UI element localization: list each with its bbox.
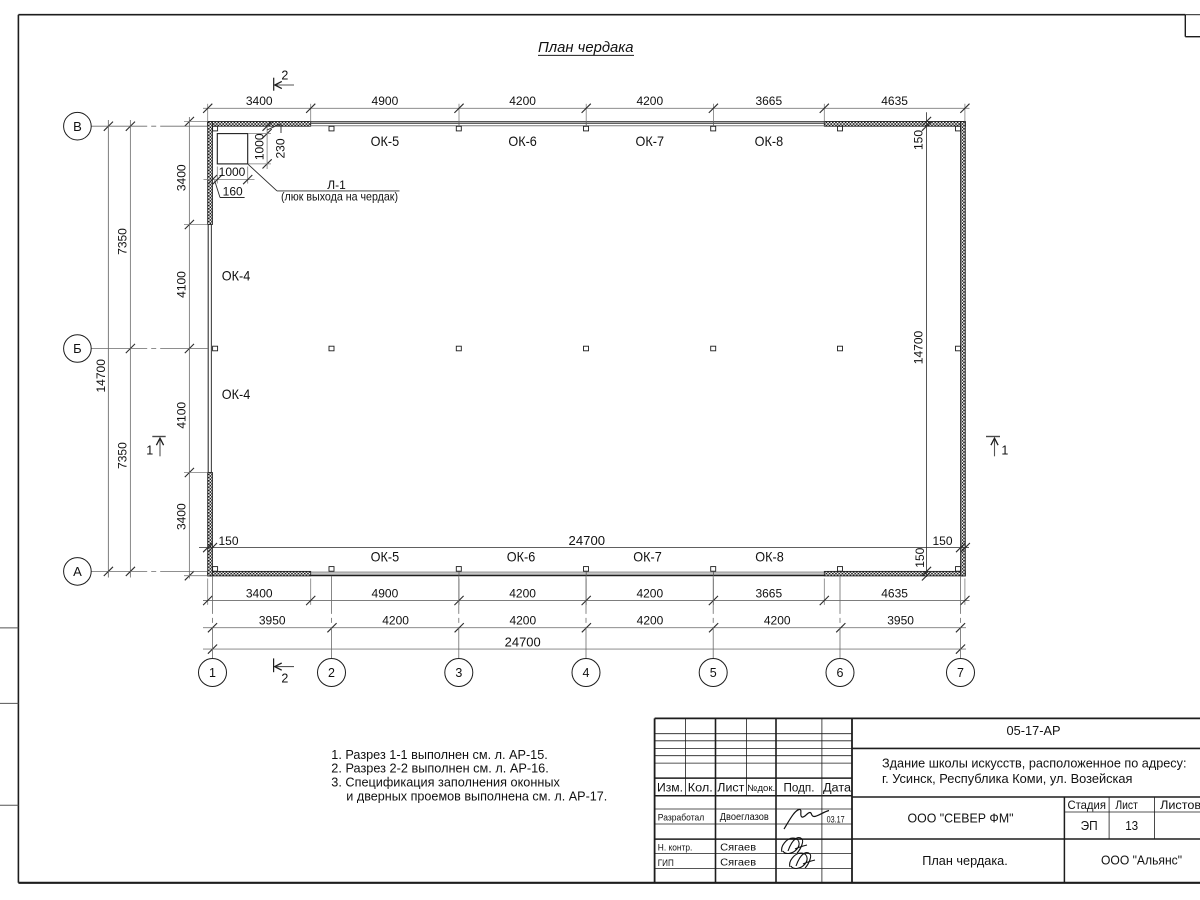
svg-text:4200: 4200	[382, 614, 409, 628]
svg-text:3950: 3950	[259, 614, 286, 628]
svg-text:1: 1	[1001, 443, 1008, 457]
svg-text:ОК-5: ОК-5	[371, 549, 400, 565]
svg-text:В: В	[73, 119, 82, 134]
svg-text:ОК-4: ОК-4	[222, 386, 251, 402]
svg-text:13: 13	[1125, 819, 1138, 833]
svg-text:Сягаев: Сягаев	[720, 842, 756, 853]
svg-text:4200: 4200	[764, 614, 791, 628]
svg-text:и дверных проемов выполнена см: и дверных проемов выполнена см. л. АР-17…	[346, 790, 607, 804]
svg-text:4635: 4635	[881, 94, 908, 108]
svg-text:4200: 4200	[636, 586, 663, 600]
svg-text:150: 150	[911, 130, 925, 150]
svg-text:Изм.: Изм.	[657, 782, 683, 794]
svg-text:г. Усинск, Республика Коми, ул: г. Усинск, Республика Коми, ул. Возейска…	[882, 771, 1133, 786]
svg-text:1. Разрез 1-1 выполнен см. л.: 1. Разрез 1-1 выполнен см. л. АР-15.	[331, 748, 548, 762]
svg-text:Листов: Листов	[1160, 798, 1200, 812]
svg-text:Подп.: Подп.	[784, 782, 815, 794]
svg-text:150: 150	[913, 547, 927, 567]
svg-text:3400: 3400	[246, 586, 273, 600]
svg-text:4900: 4900	[372, 586, 399, 600]
svg-text:ООО "Альянс": ООО "Альянс"	[1101, 852, 1182, 867]
svg-text:7350: 7350	[115, 228, 129, 255]
svg-text:4200: 4200	[637, 614, 664, 628]
svg-text:ОК-7: ОК-7	[636, 133, 665, 149]
svg-text:3400: 3400	[246, 94, 273, 108]
svg-text:ОК-5: ОК-5	[371, 133, 400, 149]
svg-text:4200: 4200	[509, 94, 536, 108]
svg-text:Б: Б	[73, 341, 82, 356]
svg-text:160: 160	[223, 184, 243, 198]
svg-text:5: 5	[710, 666, 717, 680]
svg-text:4200: 4200	[509, 614, 536, 628]
svg-text:Кол.: Кол.	[688, 782, 713, 794]
svg-text:(люк выхода на чердак): (люк выхода на чердак)	[281, 190, 398, 204]
svg-text:4900: 4900	[372, 94, 399, 108]
svg-text:1000: 1000	[219, 165, 246, 179]
svg-text:Двоеглазов: Двоеглазов	[720, 812, 769, 823]
svg-text:ГИП: ГИП	[658, 858, 674, 869]
svg-text:Н. контр.: Н. контр.	[658, 843, 693, 854]
svg-text:24700: 24700	[569, 534, 606, 548]
svg-text:4200: 4200	[509, 586, 536, 600]
svg-text:150: 150	[932, 534, 952, 548]
svg-text:24700: 24700	[505, 635, 541, 649]
svg-text:230: 230	[273, 138, 287, 158]
svg-text:3400: 3400	[174, 503, 188, 530]
svg-text:ООО "СЕВЕР ФМ": ООО "СЕВЕР ФМ"	[908, 812, 1014, 826]
svg-text:План чердака: План чердака	[538, 39, 634, 56]
svg-text:4100: 4100	[174, 271, 188, 298]
svg-text:Лист: Лист	[717, 782, 745, 794]
svg-text:4635: 4635	[881, 586, 908, 600]
svg-text:№док.: №док.	[747, 783, 775, 793]
svg-text:ОК-6: ОК-6	[508, 133, 537, 149]
svg-text:1000: 1000	[253, 133, 267, 160]
svg-text:ОК-4: ОК-4	[222, 268, 251, 284]
svg-text:150: 150	[218, 534, 238, 548]
svg-text:3665: 3665	[755, 94, 782, 108]
svg-text:2. Разрез 2-2 выполнен см. л.: 2. Разрез 2-2 выполнен см. л. АР-16.	[331, 762, 549, 776]
svg-text:03.17: 03.17	[827, 814, 845, 825]
svg-text:3: 3	[455, 666, 462, 680]
svg-text:14700: 14700	[911, 330, 925, 364]
svg-text:2: 2	[328, 666, 335, 680]
svg-text:Разработал: Разработал	[658, 812, 705, 823]
svg-text:1: 1	[209, 666, 216, 680]
svg-text:План чердака.: План чердака.	[922, 853, 1008, 868]
svg-text:4200: 4200	[636, 94, 663, 108]
svg-text:ЭП: ЭП	[1081, 819, 1098, 833]
svg-text:ОК-8: ОК-8	[755, 133, 784, 149]
svg-text:7350: 7350	[115, 442, 129, 469]
svg-text:3665: 3665	[755, 586, 782, 600]
svg-text:05-17-АР: 05-17-АР	[1007, 724, 1061, 738]
svg-text:А: А	[73, 564, 82, 579]
svg-text:2: 2	[281, 69, 288, 83]
svg-text:ОК-8: ОК-8	[755, 549, 784, 565]
svg-text:Дата: Дата	[823, 782, 852, 794]
svg-text:4100: 4100	[174, 402, 188, 429]
svg-text:ОК-6: ОК-6	[507, 549, 536, 565]
svg-text:7: 7	[957, 666, 964, 680]
svg-text:2: 2	[281, 672, 288, 686]
svg-text:Сягаев: Сягаев	[720, 858, 756, 869]
svg-text:Стадия: Стадия	[1067, 798, 1106, 812]
svg-text:Лист: Лист	[1115, 798, 1138, 812]
svg-text:3950: 3950	[887, 614, 914, 628]
svg-text:4: 4	[583, 666, 590, 680]
svg-text:3400: 3400	[174, 164, 188, 191]
svg-text:6: 6	[837, 666, 844, 680]
svg-text:Здание школы искусств, располо: Здание школы искусств, расположенное по …	[882, 756, 1187, 771]
svg-text:ОК-7: ОК-7	[633, 549, 662, 565]
svg-text:1: 1	[146, 444, 153, 458]
svg-text:14700: 14700	[94, 359, 108, 393]
svg-text:3. Спецификация заполнения око: 3. Спецификация заполнения оконных	[331, 775, 560, 789]
